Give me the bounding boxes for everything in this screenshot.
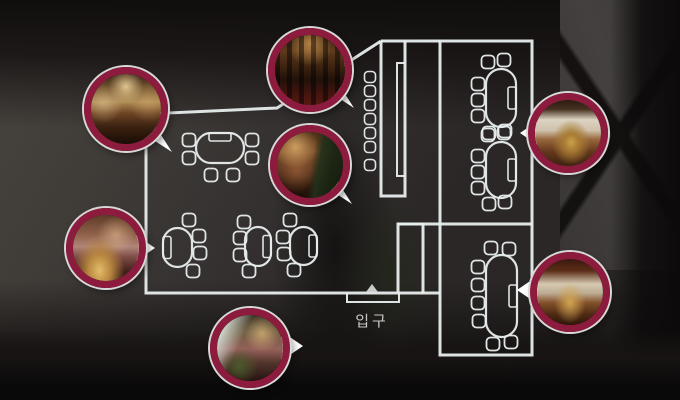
chair — [246, 134, 259, 147]
chair — [472, 110, 485, 123]
chair — [227, 169, 240, 182]
photo-bar-counter[interactable] — [268, 28, 352, 112]
table — [486, 69, 516, 127]
chair — [183, 214, 196, 227]
chair — [288, 264, 301, 277]
chair — [503, 243, 516, 256]
table — [290, 227, 317, 265]
chair — [472, 261, 485, 274]
chair — [472, 166, 485, 179]
chair — [205, 169, 218, 182]
photo-tree-dining[interactable] — [270, 125, 350, 205]
scene: 입구 — [0, 0, 680, 400]
bench-seat — [508, 159, 516, 181]
chair — [193, 230, 206, 243]
bar-stool — [365, 72, 376, 83]
chair — [277, 231, 290, 244]
photo-entrance-lobby-image — [217, 315, 283, 381]
chair — [498, 54, 511, 67]
photo-main-hall-image — [91, 74, 161, 144]
chair — [473, 315, 486, 328]
chair — [183, 152, 196, 165]
bar-stool — [365, 160, 376, 171]
photo-grill-table[interactable] — [66, 208, 146, 288]
table — [486, 255, 517, 337]
photo-grill-table-image — [73, 215, 139, 281]
photo-beamed-private-room[interactable] — [530, 252, 610, 332]
chair — [472, 94, 485, 107]
chair — [183, 134, 196, 147]
entrance-direction-marker — [366, 284, 378, 292]
bench-seat — [263, 236, 271, 258]
bar-stool — [365, 86, 376, 97]
photo-round-table-room-image — [535, 100, 601, 166]
chair — [505, 336, 518, 349]
chair — [472, 279, 485, 292]
chair — [278, 248, 291, 261]
photo-beamed-private-room-image — [537, 259, 603, 325]
bar-stool — [365, 100, 376, 111]
chair — [483, 198, 496, 211]
chair — [238, 216, 251, 229]
chair — [187, 265, 200, 278]
photo-main-hall[interactable] — [84, 67, 168, 151]
bar-stool — [365, 142, 376, 153]
bench-seat — [509, 285, 517, 307]
table — [196, 133, 244, 163]
entrance-corridor-walls — [398, 224, 423, 293]
bar-counter-outline — [381, 41, 405, 196]
table — [163, 228, 192, 267]
photo-tree-dining-image — [277, 132, 343, 198]
bar-stool — [365, 128, 376, 139]
entrance-label: 입구 — [346, 310, 398, 331]
chair — [284, 214, 297, 227]
table — [245, 227, 271, 266]
chair — [487, 338, 500, 351]
photo-round-table-room[interactable] — [528, 93, 608, 173]
chair — [472, 182, 485, 195]
bar-stool — [365, 114, 376, 125]
chair — [472, 150, 485, 163]
chair — [243, 265, 256, 278]
table — [486, 142, 516, 198]
chair — [482, 56, 495, 69]
chair — [472, 78, 485, 91]
chair — [194, 247, 207, 260]
bench-seat — [508, 87, 516, 109]
photo-bar-counter-image — [275, 35, 345, 105]
bench-seat — [209, 133, 231, 141]
photo-entrance-lobby[interactable] — [210, 308, 290, 388]
chair — [472, 297, 485, 310]
chair — [485, 242, 498, 255]
chair — [246, 152, 259, 165]
